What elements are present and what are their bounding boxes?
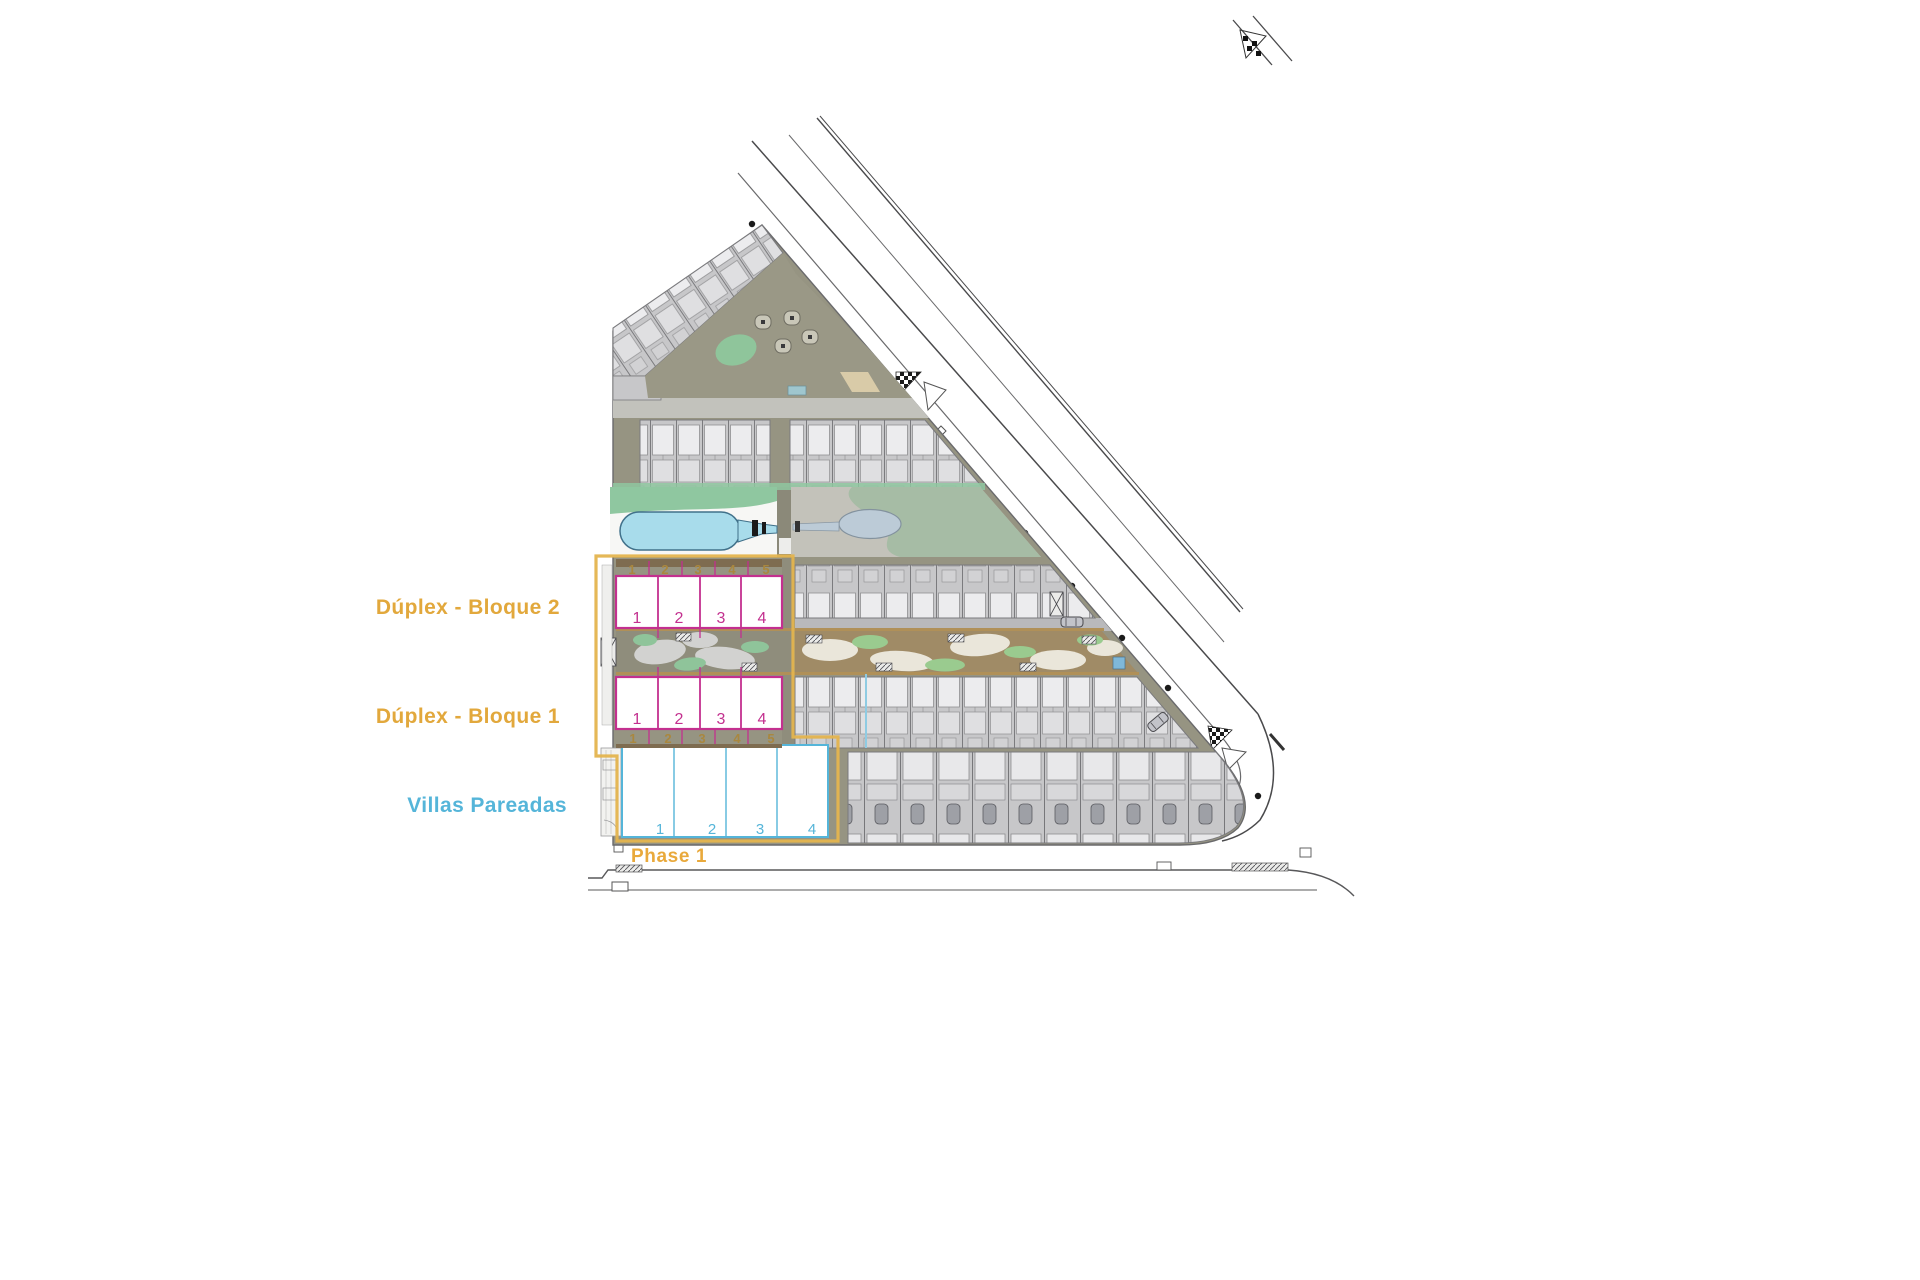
pool-area-phase2 (791, 487, 1041, 557)
bloque2-unit-number: 1 (633, 610, 642, 627)
bloque1-unit-number: 4 (758, 711, 767, 728)
label-duplex-bloque2: Dúplex - Bloque 2 (376, 596, 560, 619)
pool-area-phase1 (610, 487, 791, 557)
swimming-pool (620, 512, 740, 550)
car (1061, 617, 1083, 627)
label-duplex-bloque1: Dúplex - Bloque 1 (376, 705, 560, 728)
swimming-pool-2 (839, 510, 901, 539)
villa-unit-number: 3 (756, 821, 764, 838)
bloque1-parcel-number: 1 (629, 731, 636, 746)
villa-unit-number: 4 (808, 821, 816, 838)
utility-box-left (614, 845, 623, 852)
apartment-row-block (795, 677, 1198, 748)
bloque1-parcel-number: 3 (698, 731, 705, 746)
site-plan-drawing: 1 2 3 4 1 2 3 4 5 1 2 3 4 (0, 0, 1920, 1280)
pool-deck-steps (779, 538, 791, 554)
road-rect-marker (1157, 862, 1171, 870)
bloque2-parcel-number: 5 (762, 562, 769, 577)
label-villas-pareadas: Villas Pareadas (407, 794, 567, 817)
bloque1-parcel-number: 5 (767, 731, 774, 746)
plaza-water-feature (788, 386, 806, 395)
bus-bay-marker (612, 882, 628, 891)
bloque1-parcel-number: 4 (733, 731, 741, 746)
townhouse-row (848, 752, 1244, 843)
bloque2-parcel-number: 2 (661, 562, 668, 577)
bloque1-unit-number: 3 (717, 711, 726, 728)
apartment-row-block (790, 420, 983, 488)
bloque1-parcel-number: 2 (664, 731, 671, 746)
pool-bridge (762, 522, 766, 534)
site-plan-page: 1 2 3 4 1 2 3 4 5 1 2 3 4 (0, 0, 1920, 1280)
road-marker-dash (1270, 734, 1284, 750)
pool-bridge (752, 520, 758, 536)
villas-outline (622, 745, 828, 837)
bloque2-unit-number: 3 (717, 610, 726, 627)
bloque2-parcel-number: 4 (728, 562, 736, 577)
label-phase1: Phase 1 (631, 846, 707, 867)
sidewalk-hatch-right (1232, 863, 1288, 871)
ramp-box-right (1050, 592, 1063, 616)
bloque2-parcel-number: 1 (628, 562, 635, 577)
villas-pareadas-block: 1 2 3 4 (601, 745, 828, 838)
pool2-bridge (795, 521, 800, 532)
bloque1-unit-number: 1 (633, 711, 642, 728)
apartment-row-block (640, 420, 770, 490)
bloque2-unit-number: 2 (675, 610, 684, 627)
bloque2-parcel-number: 3 (694, 562, 701, 577)
utility-box-right (1300, 848, 1311, 857)
plunge-pool (1113, 657, 1125, 669)
service-strip (602, 565, 612, 725)
bloque1-unit-number: 2 (675, 711, 684, 728)
villa-unit-number: 1 (656, 821, 664, 838)
bloque2-unit-number: 4 (758, 610, 767, 627)
villa-unit-number: 2 (708, 821, 716, 838)
